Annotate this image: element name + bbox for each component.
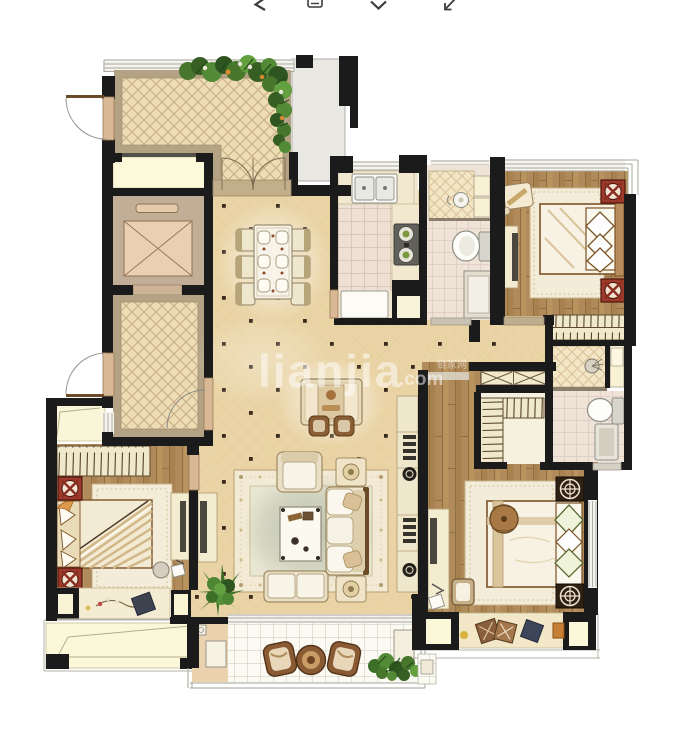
svg-text:.com: .com (399, 369, 443, 390)
svg-text:lianjia: lianjia (258, 345, 402, 397)
svg-text:链家网: 链家网 (437, 358, 467, 371)
